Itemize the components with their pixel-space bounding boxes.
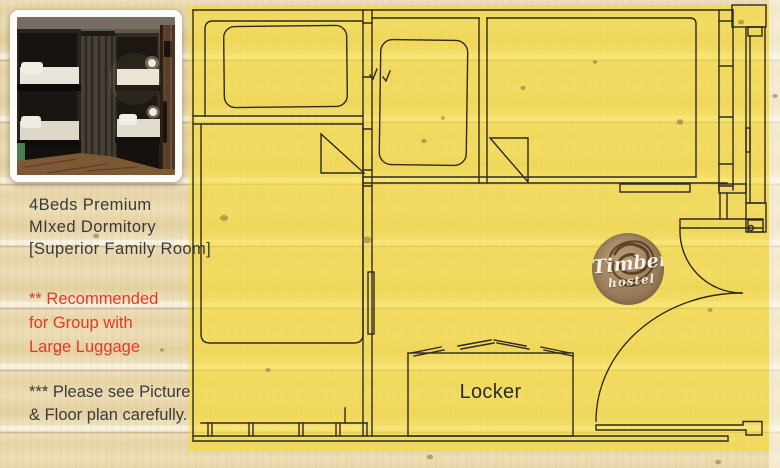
- caution-note: *** Please see Picture & Floor plan care…: [29, 381, 190, 426]
- hostel-room-promo-image: 4Beds Premium MIxed Dormitory [Superior …: [0, 0, 780, 468]
- room-title-line-1: 4Beds Premium: [29, 194, 211, 216]
- room-title-line-3: [Superior Family Room]: [29, 238, 211, 260]
- caution-line-1: *** Please see Picture: [29, 381, 190, 404]
- timber-hostel-logo: Timber hostel: [592, 233, 664, 305]
- bed-left-large: [201, 125, 367, 436]
- room-photo: [10, 10, 182, 182]
- blanket-fold: [490, 138, 528, 182]
- blanket-fold: [321, 134, 364, 173]
- bed-top-right: [487, 18, 696, 192]
- locker-label: Locker: [408, 381, 573, 404]
- plan-walls: [193, 10, 733, 441]
- recommendation-line-2: for Group with: [29, 311, 158, 335]
- recommendation-note: ** Recommended for Group with Large Lugg…: [29, 287, 158, 359]
- right-door-frame: [732, 5, 766, 232]
- bed-top-left: [193, 21, 363, 124]
- room-title-line-2: MIxed Dormitory: [29, 216, 211, 238]
- arrow-mark: [383, 71, 390, 81]
- bunk-room-photo-illustration: [17, 17, 175, 175]
- recommendation-line-3: Large Luggage: [29, 335, 158, 359]
- ladder-right: [719, 10, 746, 219]
- arrow-mark: [370, 69, 377, 79]
- room-type-title: 4Beds Premium MIxed Dormitory [Superior …: [29, 194, 211, 260]
- ladder-left: [363, 23, 372, 186]
- bed-step: [620, 184, 690, 192]
- bed-middle: [370, 18, 479, 166]
- door-leaf: [596, 422, 762, 436]
- recommendation-line-1: ** Recommended: [29, 287, 158, 311]
- caution-line-2: & Floor plan carefully.: [29, 404, 190, 427]
